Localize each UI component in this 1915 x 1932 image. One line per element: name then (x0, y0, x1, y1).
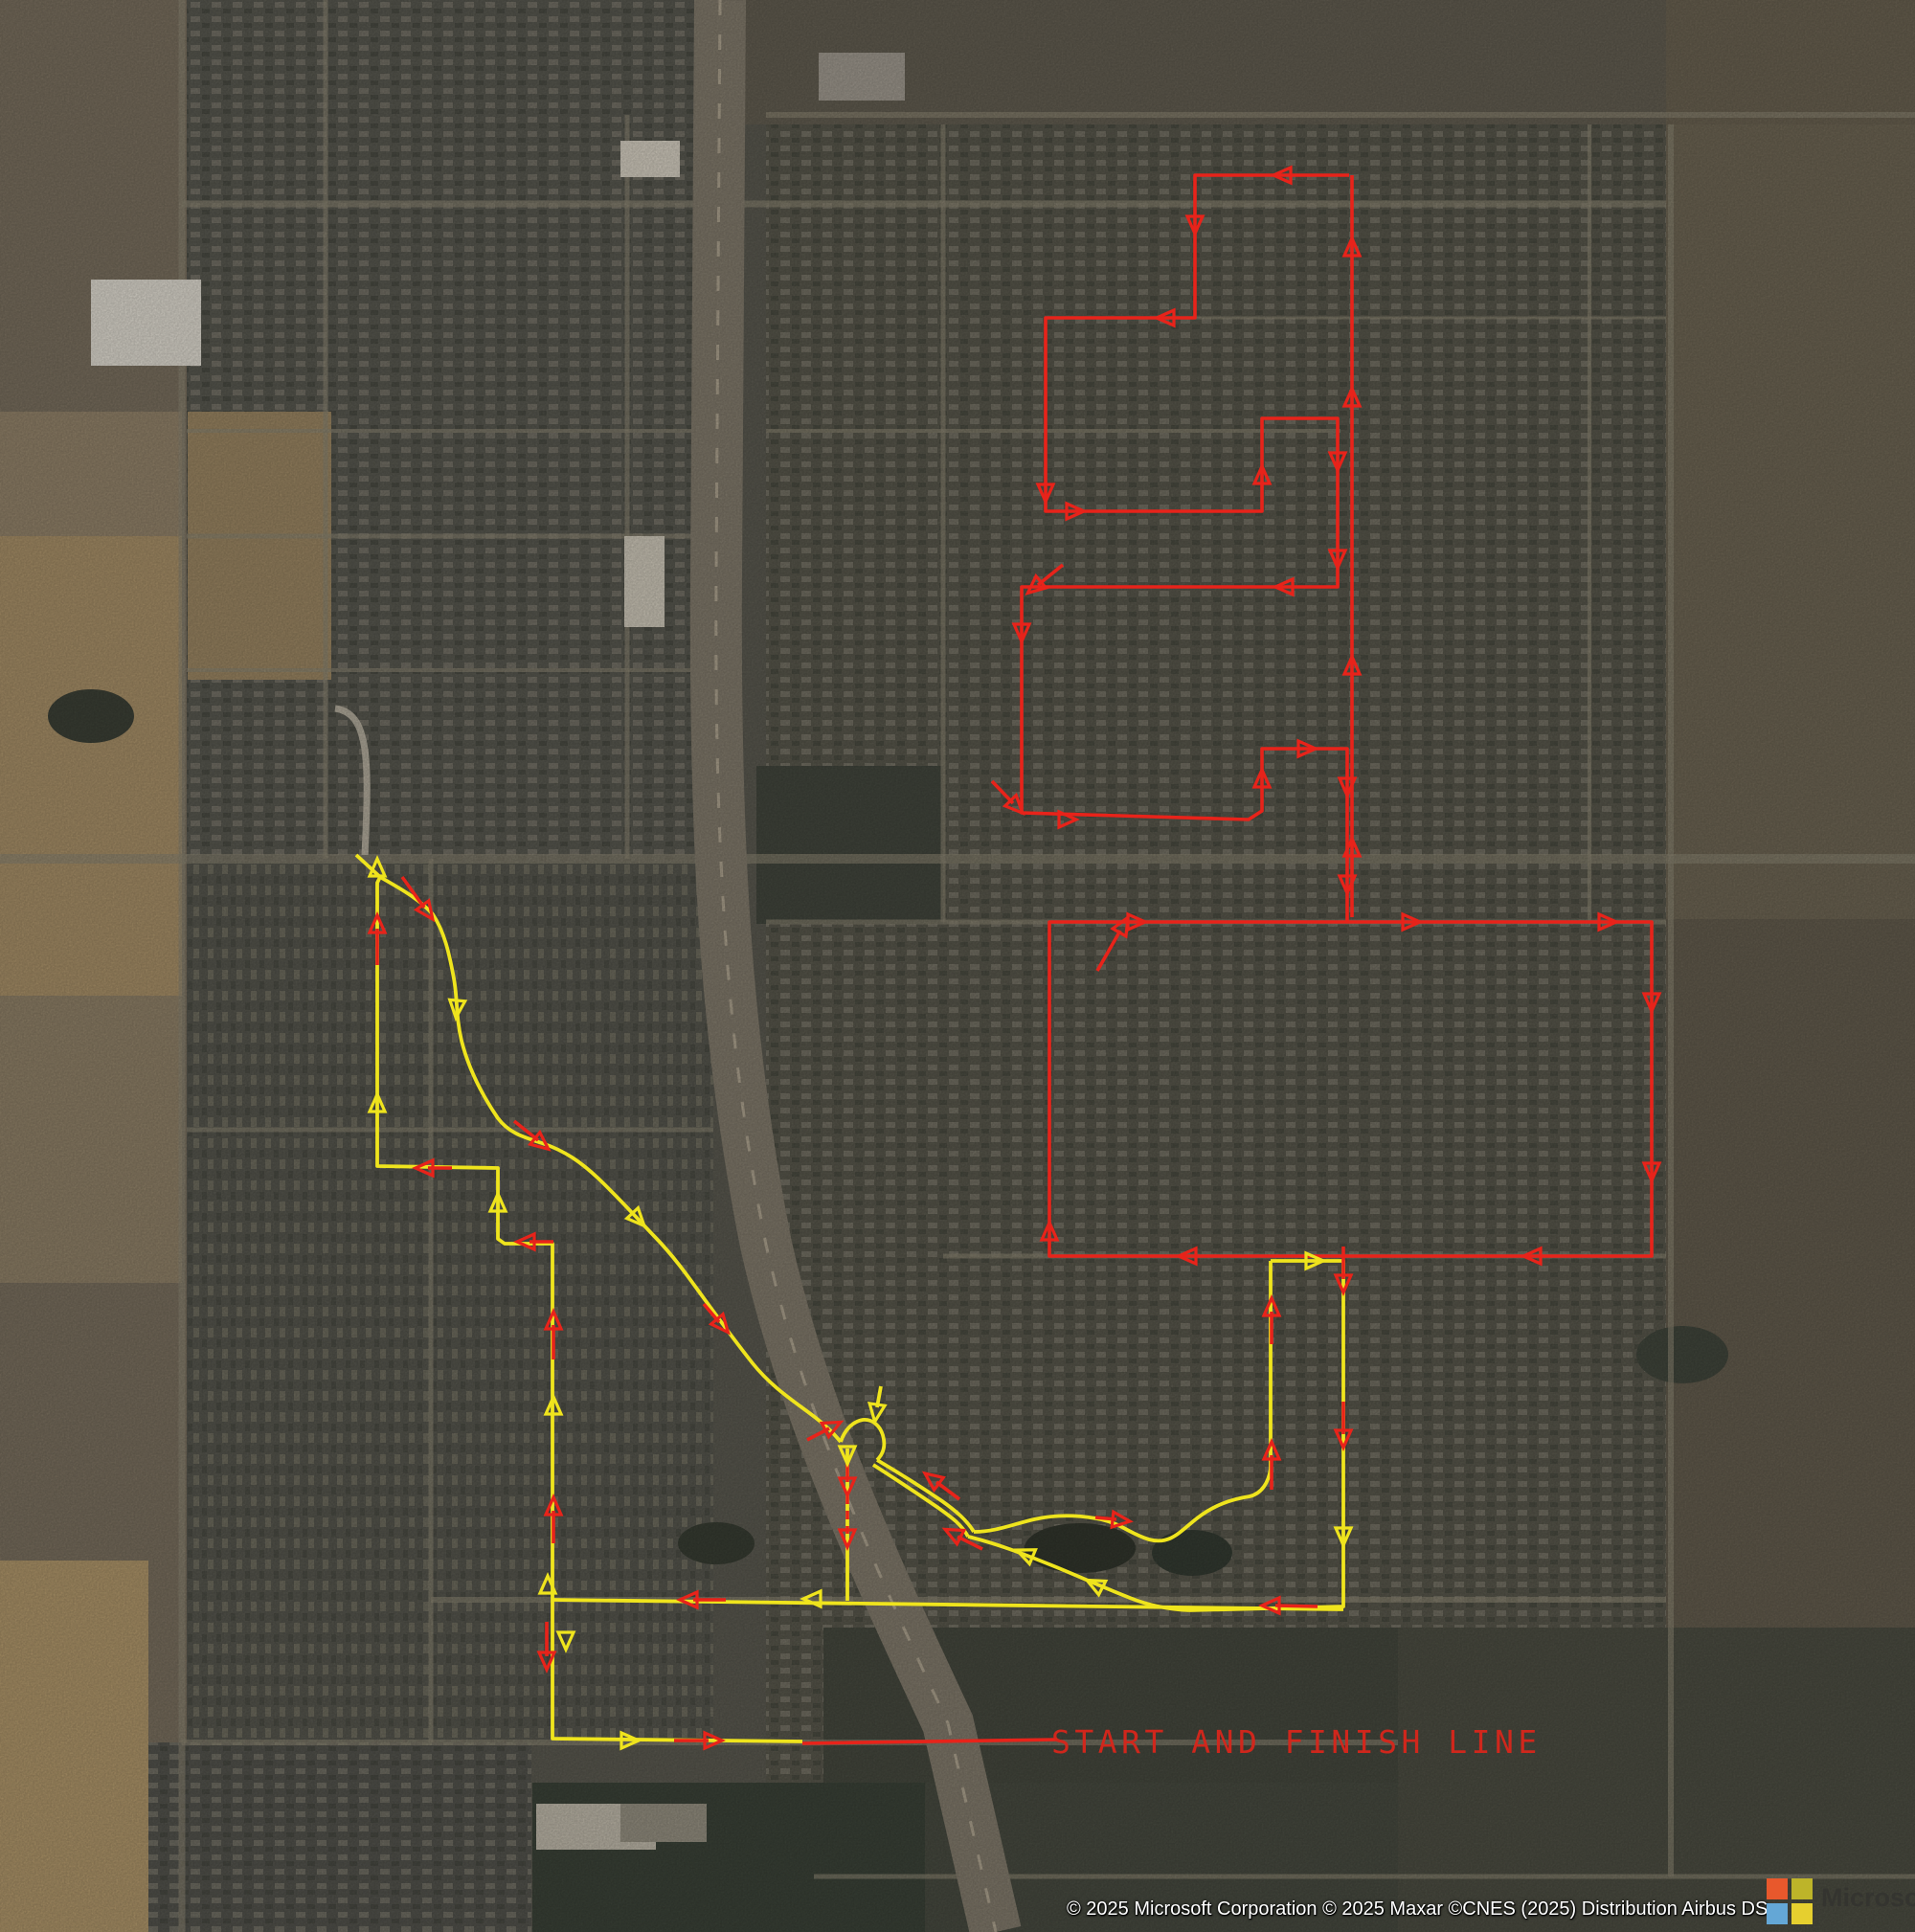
start-finish-label: START AND FINISH LINE (1051, 1723, 1645, 1761)
ms-logo-square-green (1791, 1878, 1813, 1899)
ms-logo-square-red (1767, 1878, 1788, 1899)
microsoft-logo[interactable] (1767, 1878, 1814, 1925)
imagery-grain (0, 0, 1915, 1932)
map-viewport[interactable]: START AND FINISH LINE © 2025 Microsoft C… (0, 0, 1915, 1932)
microsoft-wordmark: Microsoft (1821, 1883, 1915, 1913)
ms-logo-square-blue (1767, 1903, 1788, 1924)
satellite-map (0, 0, 1915, 1932)
copyright-text: © 2025 Microsoft Corporation © 2025 Maxa… (1067, 1898, 1768, 1921)
ms-logo-square-yellow (1791, 1903, 1813, 1924)
